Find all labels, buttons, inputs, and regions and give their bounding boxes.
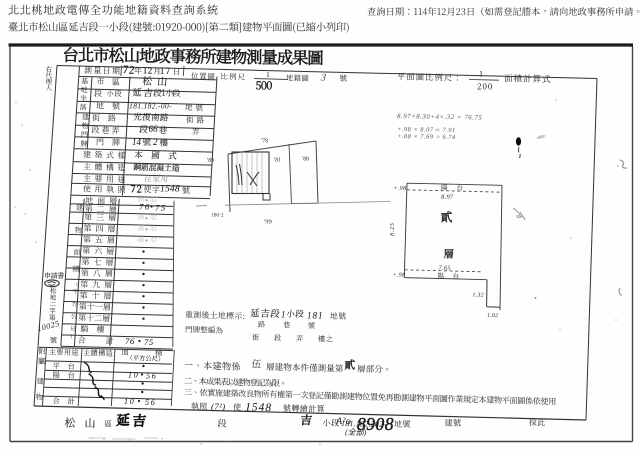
svg-text:+.98: +.98 (392, 273, 405, 279)
svg-text:1: 1 (479, 70, 483, 79)
svg-text:66: 66 (149, 124, 159, 134)
svg-text:75: 75 (155, 203, 167, 213)
svg-text:1.32: 1.32 (472, 293, 483, 299)
svg-text:(7²): (7²) (211, 402, 226, 412)
svg-text:76: 76 (125, 336, 135, 346)
svg-text:′81: ′81 (274, 158, 281, 164)
svg-text:56: 56 (145, 398, 157, 407)
svg-text:181: 181 (307, 311, 324, 321)
svg-text:1.02: 1.02 (487, 313, 498, 319)
svg-text:181.182.-00-: 181.182.-00- (129, 102, 172, 111)
svg-text:14: 14 (132, 137, 142, 147)
svg-text:′99: ′99 (264, 219, 272, 226)
svg-text:′89: ′89 (207, 158, 214, 164)
svg-text:+.88 × 7.69 = 6.74: +.88 × 7.69 = 6.74 (397, 133, 456, 141)
svg-text:+.98: +.98 (393, 186, 406, 192)
svg-text:75: 75 (144, 337, 154, 347)
svg-text:′78: ′78 (261, 139, 268, 145)
svg-text:1: 1 (266, 70, 270, 79)
svg-text:A²o: A²o (335, 416, 351, 427)
svg-text:180·2: 180·2 (211, 213, 224, 219)
svg-text:10: 10 (128, 371, 140, 380)
svg-text:8908: 8908 (357, 414, 394, 434)
svg-text:2: 2 (153, 137, 158, 147)
svg-text:8.25: 8.25 (390, 222, 396, 236)
svg-text:56: 56 (146, 372, 158, 381)
svg-text:1: 1 (281, 310, 286, 320)
svg-text:1548: 1548 (160, 185, 180, 195)
svg-text:10: 10 (124, 397, 136, 406)
svg-text:′88: ′88 (302, 157, 309, 163)
svg-text:1548: 1548 (245, 402, 272, 415)
svg-text:8.97: 8.97 (441, 194, 454, 201)
svg-text:76: 76 (139, 202, 151, 212)
svg-text:7.65: 7.65 (438, 265, 451, 272)
